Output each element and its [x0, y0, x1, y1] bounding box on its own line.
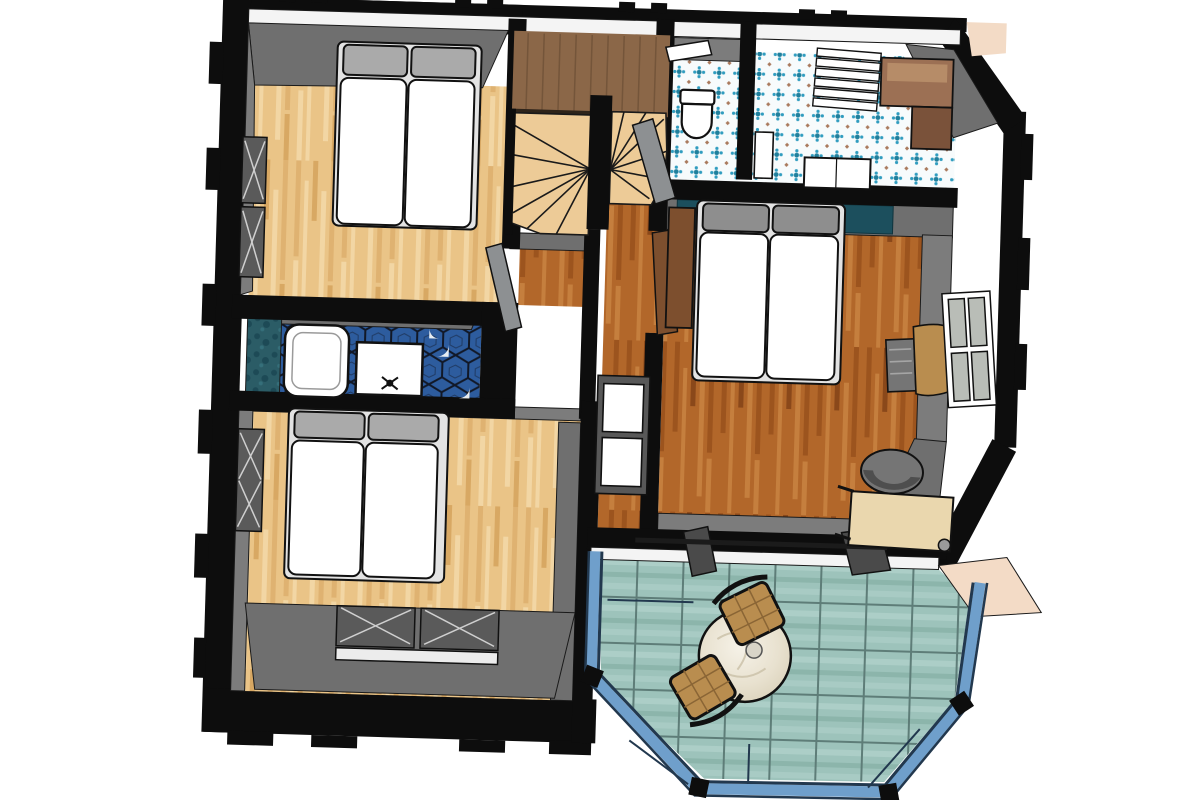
master-wardrobe	[666, 207, 696, 328]
desk-top	[848, 491, 953, 551]
hall-shelving-unit	[595, 375, 650, 494]
bathroom-sink	[804, 157, 871, 189]
winder-steps-left	[510, 113, 592, 235]
floor-plan-drawing	[0, 0, 1200, 800]
shower-glass-panel	[754, 132, 773, 179]
wc-fixtures	[679, 90, 714, 139]
bed-master	[692, 200, 845, 384]
corner-block-peach-top	[966, 22, 1007, 57]
cup-on-table	[746, 642, 762, 658]
bed-bottom-left	[284, 408, 449, 583]
floor-plan-rotated-group	[188, 0, 1059, 800]
radiator-window-bedroom2-bottom-right	[420, 608, 499, 650]
sink-vanity	[355, 342, 423, 396]
floor-plan-stage	[0, 0, 1200, 800]
desk-caster	[938, 539, 951, 552]
master-window-right	[942, 291, 996, 408]
radiator-window-bedroom2-left	[235, 429, 264, 532]
radiator-window-bedroom1-lower	[239, 207, 265, 278]
radiator-window-bedroom2-bottom-left	[336, 606, 415, 648]
bed-top-left	[332, 41, 481, 229]
radiator-window-bedroom1-upper	[241, 137, 267, 204]
